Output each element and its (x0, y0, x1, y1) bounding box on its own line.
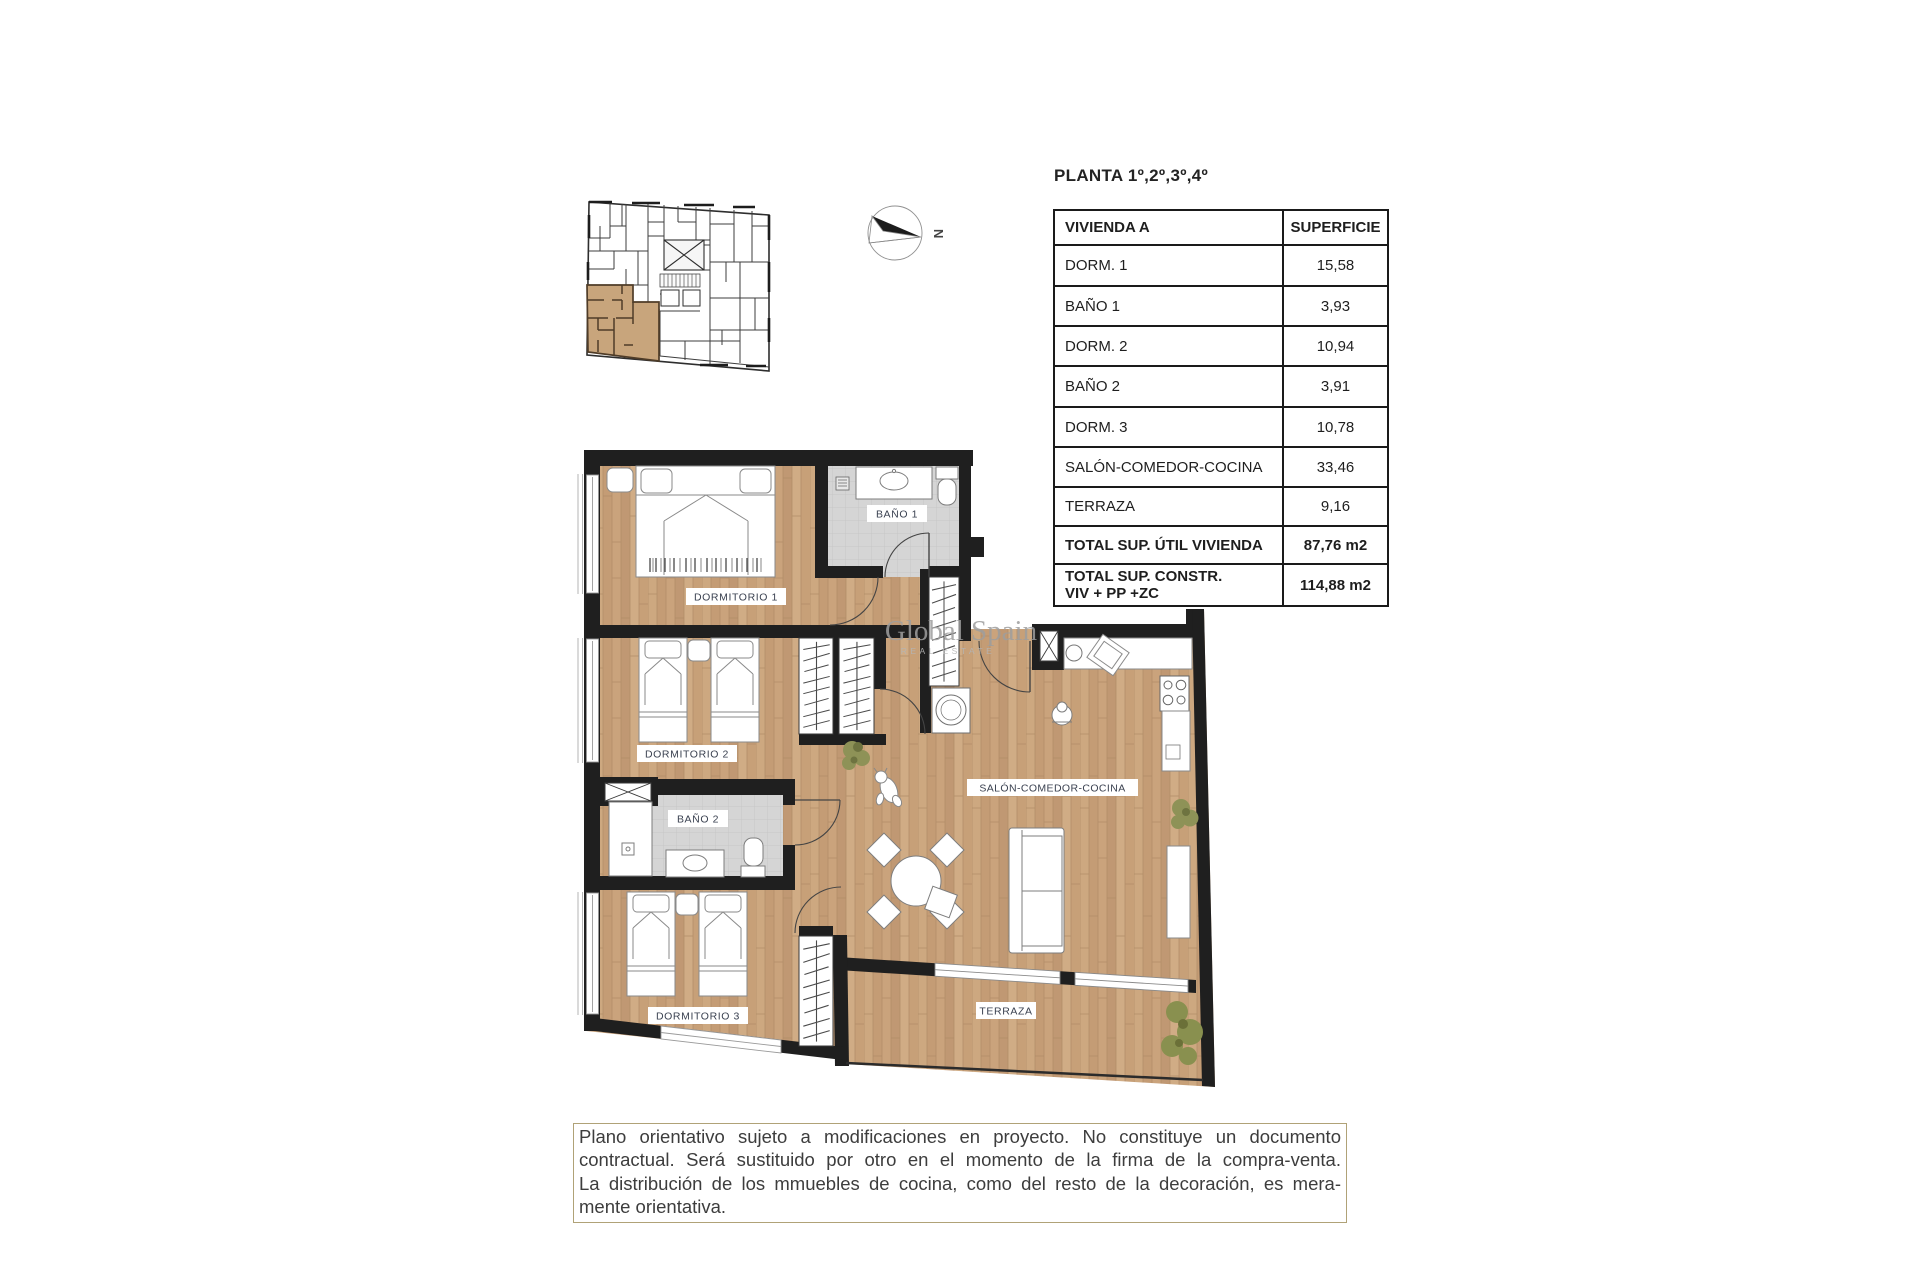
svg-text:TERRAZA: TERRAZA (979, 1006, 1032, 1018)
svg-text:DORMITORIO 3: DORMITORIO 3 (656, 1011, 740, 1023)
svg-text:REAL ESTATE: REAL ESTATE (901, 646, 996, 656)
svg-text:N: N (931, 229, 946, 238)
svg-text:BAÑO 1: BAÑO 1 (876, 508, 918, 521)
svg-text:DORMITORIO 2: DORMITORIO 2 (645, 749, 729, 761)
svg-text:BAÑO 2: BAÑO 2 (677, 813, 719, 826)
svg-text:Global Spain: Global Spain (885, 615, 1038, 647)
svg-text:DORMITORIO 1: DORMITORIO 1 (694, 592, 778, 604)
svg-text:SALÓN-COMEDOR-COCINA: SALÓN-COMEDOR-COCINA (979, 782, 1125, 795)
